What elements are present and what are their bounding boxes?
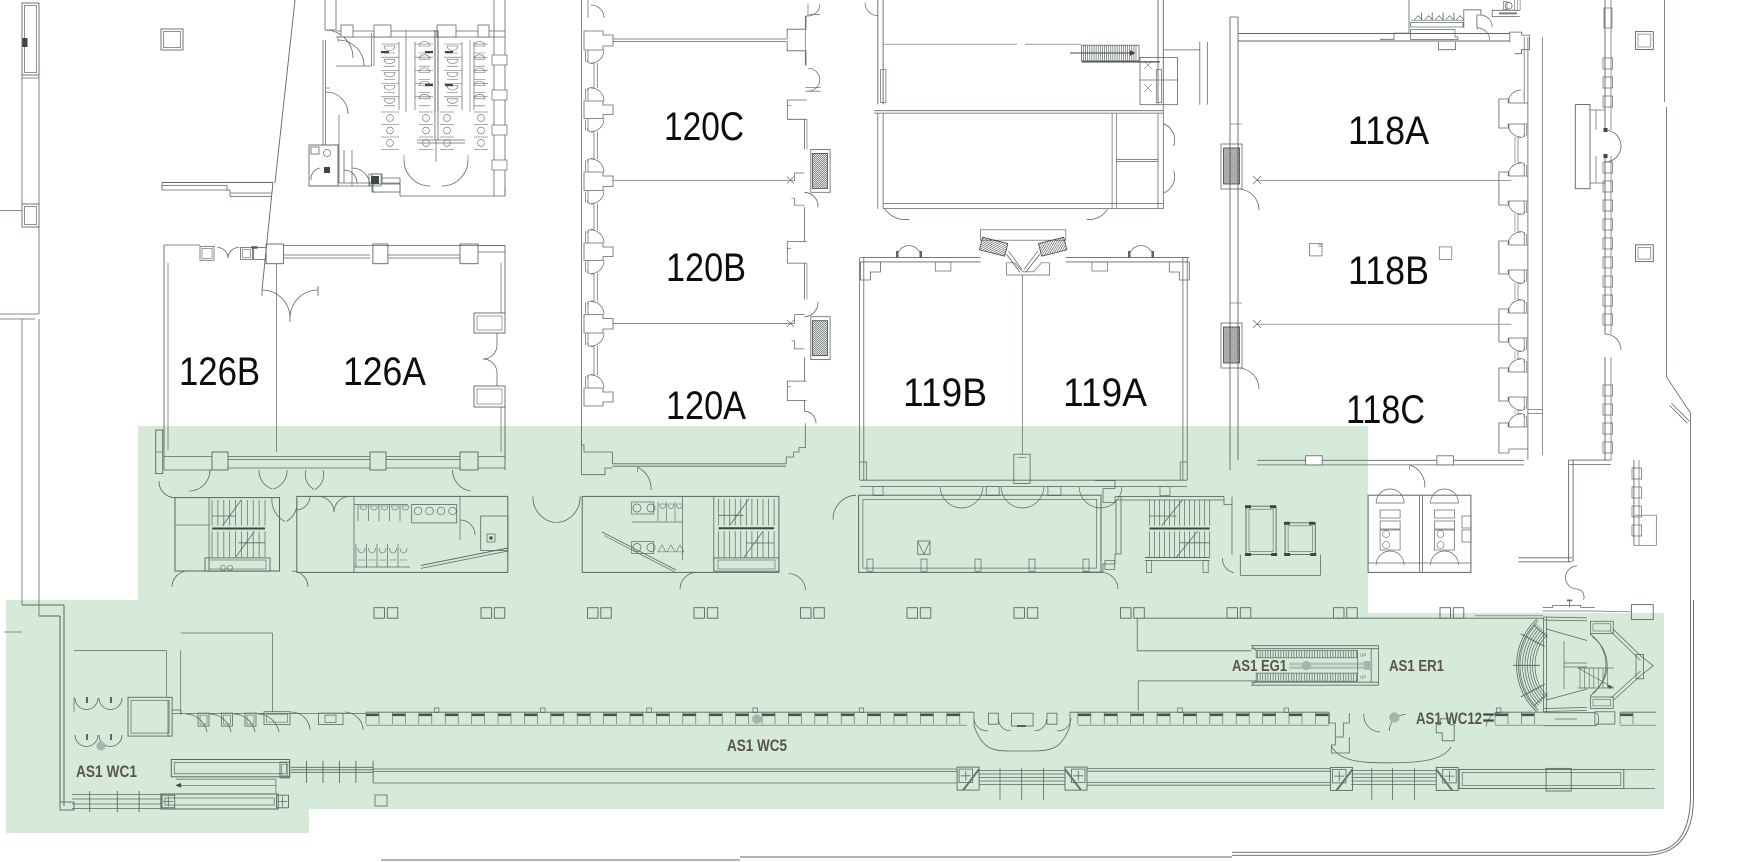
- svg-text:126B: 126B: [179, 350, 260, 394]
- svg-text:120A: 120A: [666, 384, 746, 428]
- svg-text:118B: 118B: [1348, 249, 1429, 293]
- svg-text:AS1 WC1: AS1 WC1: [76, 762, 137, 781]
- svg-text:UP: UP: [1360, 675, 1366, 680]
- svg-text:119A: 119A: [1063, 371, 1147, 415]
- svg-text:AS1 WC12: AS1 WC12: [1416, 709, 1482, 728]
- svg-text:AS1 ER1: AS1 ER1: [1389, 658, 1444, 675]
- svg-text:126A: 126A: [343, 350, 426, 394]
- svg-text:UP: UP: [1360, 653, 1366, 658]
- svg-text:120B: 120B: [666, 246, 746, 290]
- svg-text:119B: 119B: [903, 371, 987, 415]
- svg-text:118C: 118C: [1346, 388, 1425, 432]
- svg-text:120C: 120C: [664, 105, 744, 149]
- svg-text:AS1 WC5: AS1 WC5: [727, 736, 787, 755]
- svg-text:AS1 EG1: AS1 EG1: [1232, 658, 1287, 675]
- svg-text:118A: 118A: [1348, 109, 1429, 153]
